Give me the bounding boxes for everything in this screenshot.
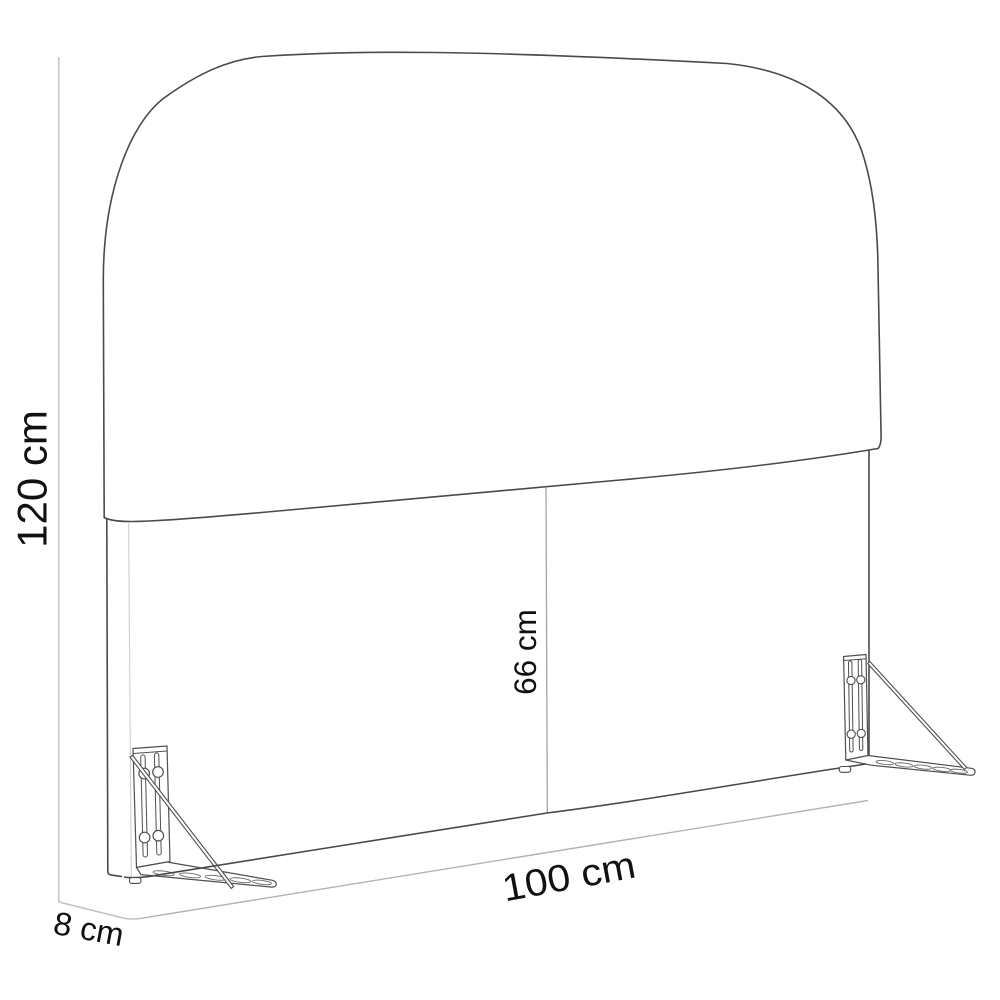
svg-text:120 cm: 120 cm [9, 410, 56, 548]
svg-text:100 cm: 100 cm [499, 844, 639, 910]
svg-text:8 cm: 8 cm [51, 904, 127, 953]
svg-text:66 cm: 66 cm [507, 609, 543, 695]
